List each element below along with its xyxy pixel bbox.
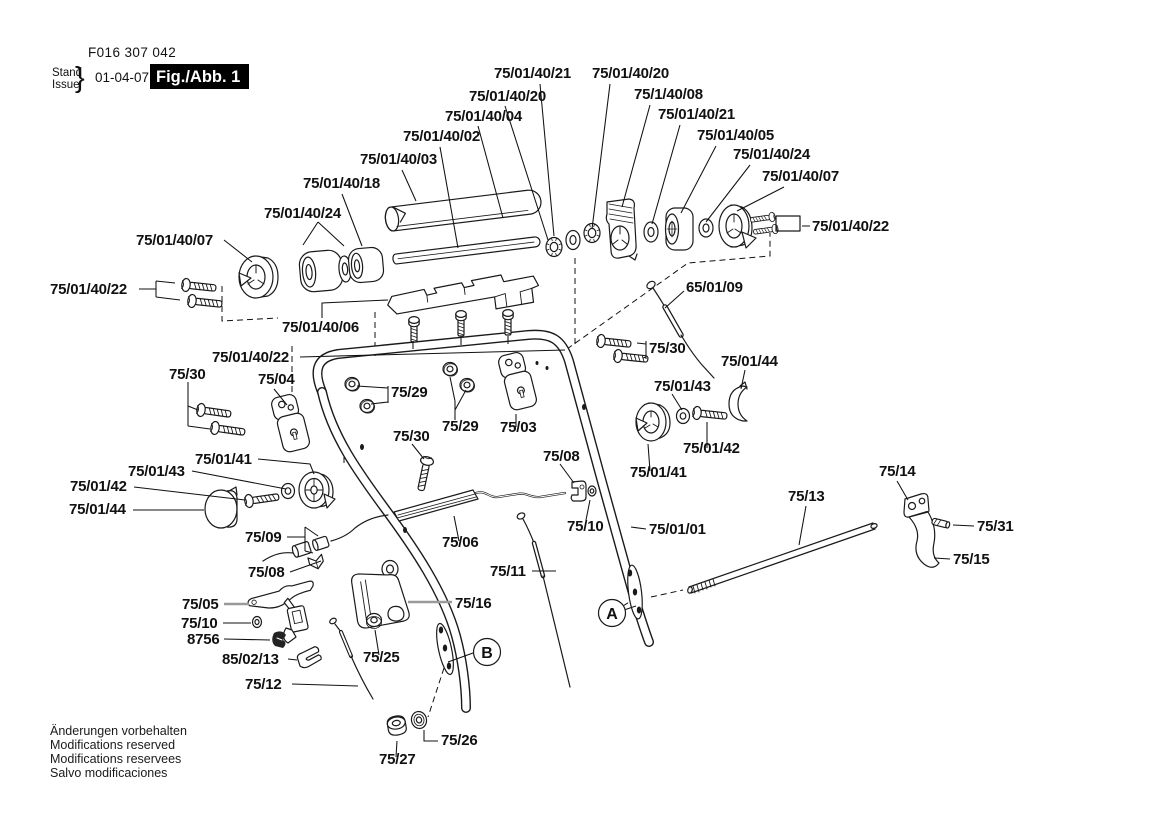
trigger-handle (904, 494, 939, 568)
roller-bushing (348, 247, 385, 284)
screw (181, 278, 216, 295)
screw (750, 212, 776, 225)
part-label: 75/13 (788, 488, 825, 505)
part-label: 75/27 (379, 751, 416, 768)
part-label: 75/06 (442, 534, 479, 551)
roller-bushing (298, 249, 343, 293)
flange-nut (443, 363, 458, 377)
pulley-roller (666, 208, 694, 250)
part-label: 75/01/43 (128, 463, 185, 480)
part-label: 75/08 (248, 564, 285, 581)
screw (503, 310, 513, 335)
part-label: 75/09 (245, 529, 282, 546)
callout-a: A (599, 600, 626, 627)
cup-pulley (719, 205, 756, 248)
part-label: 75/10 (181, 615, 218, 632)
part-label: 85/02/13 (222, 651, 279, 668)
screw (613, 349, 648, 366)
cap-nut (386, 715, 407, 737)
part-label: 75/1/40/08 (634, 86, 703, 103)
part-label: 75/26 (441, 732, 478, 749)
part-label: 75/01/40/24 (733, 146, 811, 163)
flange-nut (360, 400, 375, 414)
washer (677, 409, 690, 424)
part-label: 75/25 (363, 649, 400, 666)
washer (588, 486, 596, 496)
part-label: 75/01/40/22 (50, 281, 127, 298)
part-label: 75/11 (490, 563, 526, 580)
part-label: 75/01/40/05 (697, 127, 774, 144)
screw (414, 456, 434, 492)
screw (210, 421, 246, 439)
part-label: 75/01/44 (69, 501, 127, 518)
footer-line: Modifications reserved (50, 738, 175, 752)
roller-tube (384, 189, 542, 232)
washer (644, 222, 658, 242)
part-label: 75/08 (543, 448, 580, 465)
part-label: 75/01/40/02 (403, 128, 480, 145)
screw (409, 317, 419, 342)
part-label: 75/01/41 (630, 464, 687, 481)
part-label: 75/03 (500, 419, 537, 436)
part-label: 75/01/40/24 (264, 205, 342, 222)
part-label: 75/01/40/21 (494, 65, 571, 82)
part-label: 75/10 (567, 518, 604, 535)
brace-glyph: } (75, 62, 85, 94)
parts-diagram: F016 307 042 Stand Issue } 01-04-07 Fig.… (0, 0, 1168, 825)
part-label: 75/01/42 (683, 440, 740, 457)
part-label: 75/12 (245, 676, 282, 693)
document-number: F016 307 042 (88, 45, 176, 60)
title-block: F016 307 042 Stand Issue } 01-04-07 Fig.… (52, 45, 249, 94)
rod-and-trigger (687, 494, 950, 594)
footer-line: Modifications reservees (50, 752, 181, 766)
link-rod-13 (687, 523, 878, 594)
spring-clip (296, 646, 323, 669)
part-label: 75/15 (953, 551, 990, 568)
figure-label: Fig./Abb. 1 (156, 68, 240, 86)
screw (456, 311, 466, 336)
part-label: 75/01/40/04 (445, 108, 523, 125)
callout-a-letter: A (606, 606, 618, 623)
cable-11 (516, 512, 570, 687)
pulley (299, 472, 335, 508)
footer-notes: Änderungen vorbehalten Modifications res… (50, 724, 187, 780)
screw (244, 490, 280, 508)
footer-line: Änderungen vorbehalten (50, 724, 187, 738)
part-label: 75/01/40/03 (360, 151, 437, 168)
cup-washer (239, 256, 278, 298)
screw (692, 406, 727, 423)
cable-bushings-09 (263, 515, 388, 571)
mount-bracket (497, 350, 538, 411)
lever-bracket-16 (340, 561, 419, 640)
part-label: 75/05 (182, 596, 219, 613)
washer (282, 484, 295, 499)
footer-line: Salvo modificaciones (50, 766, 167, 780)
screw (753, 224, 779, 237)
bottom-fasteners (386, 710, 428, 736)
part-label: 75/01/42 (70, 478, 127, 495)
issue-date: 01-04-07 (95, 70, 149, 85)
cable-clamp (571, 481, 586, 501)
part-label: 75/01/40/06 (282, 319, 359, 336)
flange-nut (345, 378, 360, 392)
part-label: 75/01/40/22 (812, 218, 889, 235)
screw (596, 334, 631, 351)
part-label: 75/01/40/22 (212, 349, 289, 366)
roller-shaft (392, 236, 540, 264)
part-label: 75/01/44 (721, 353, 779, 370)
part-label: 75/01/40/07 (762, 168, 839, 185)
part-label: 75/30 (649, 340, 686, 357)
part-label: 8756 (187, 631, 220, 648)
ratchet-cam (606, 199, 637, 260)
washer (253, 617, 262, 628)
part-label: 75/01/40/20 (592, 65, 669, 82)
part-label: 75/01/40/07 (136, 232, 213, 249)
part-label: 75/01/01 (649, 521, 706, 538)
screw (196, 403, 232, 421)
part-label: 75/01/40/21 (658, 106, 735, 123)
cup-pulley (636, 403, 670, 441)
part-label: 75/01/43 (654, 378, 711, 395)
cover-shell (205, 487, 237, 528)
flange-nut (460, 379, 475, 393)
part-label: 65/01/09 (686, 279, 743, 296)
star-washer (546, 238, 562, 257)
callout-b-letter: B (481, 645, 493, 662)
part-label: 75/30 (393, 428, 430, 445)
washer (410, 710, 428, 730)
callout-b: B (474, 639, 501, 666)
screw (187, 294, 222, 311)
part-label: 75/01/40/20 (469, 88, 546, 105)
lever (247, 581, 316, 615)
part-label: 75/29 (442, 418, 479, 435)
part-label: 75/31 (977, 518, 1014, 535)
mount-bracket (270, 392, 311, 453)
part-label: 75/29 (391, 384, 428, 401)
screw-group-box (776, 216, 800, 231)
left-pulley-cluster (205, 472, 335, 528)
part-labels: 75/01/40/21 75/01/40/20 75/01/40/20 75/1… (50, 65, 1014, 768)
part-label: 75/30 (169, 366, 206, 383)
cover-shell (729, 382, 747, 421)
part-label: 75/14 (879, 463, 916, 480)
part-label: 75/01/40/18 (303, 175, 380, 192)
washer (566, 231, 580, 250)
part-label: 75/01/41 (195, 451, 252, 468)
part-label: 75/04 (258, 371, 295, 388)
part-label: 75/16 (455, 595, 492, 612)
